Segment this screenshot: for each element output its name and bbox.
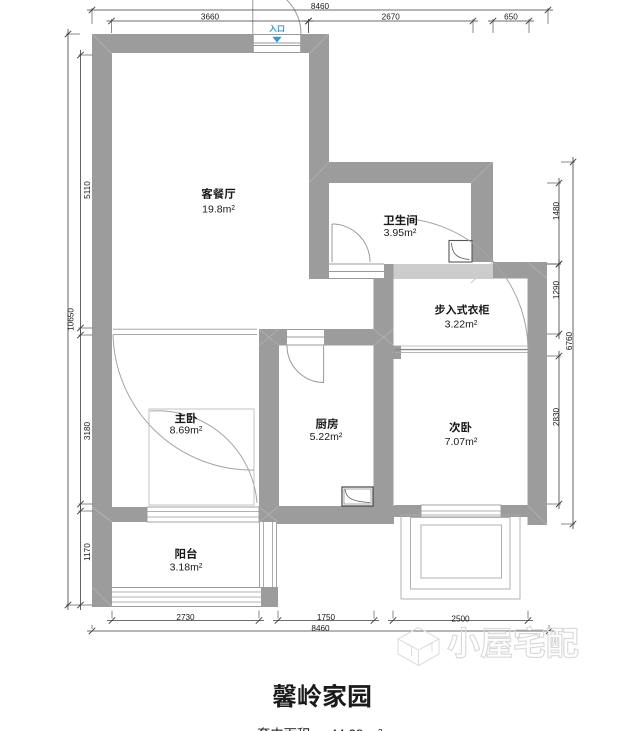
- svg-text:8460: 8460: [311, 624, 330, 633]
- svg-text:5110: 5110: [83, 181, 92, 199]
- svg-text:44.28 m²: 44.28 m²: [330, 727, 383, 731]
- svg-text:6760: 6760: [565, 331, 574, 350]
- svg-text:1170: 1170: [83, 543, 92, 561]
- svg-text:3.95m²: 3.95m²: [384, 227, 417, 239]
- svg-text:10650: 10650: [67, 308, 76, 331]
- svg-text:3.22m²: 3.22m²: [445, 319, 478, 331]
- svg-text:2730: 2730: [176, 613, 195, 622]
- svg-text:3.18m²: 3.18m²: [170, 562, 203, 574]
- svg-text:1290: 1290: [552, 280, 561, 299]
- svg-text:1480: 1480: [552, 201, 561, 220]
- svg-text:650: 650: [504, 13, 518, 22]
- svg-text:2500: 2500: [451, 615, 470, 624]
- svg-text:3660: 3660: [201, 13, 220, 22]
- svg-text:7.07m²: 7.07m²: [445, 436, 478, 448]
- svg-text::: :: [313, 727, 317, 731]
- svg-text:2670: 2670: [382, 13, 401, 22]
- svg-text:8.69m²: 8.69m²: [170, 425, 203, 437]
- svg-text:2830: 2830: [552, 407, 561, 426]
- svg-text:5.22m²: 5.22m²: [310, 431, 343, 443]
- svg-text:8460: 8460: [311, 2, 330, 11]
- svg-text:3180: 3180: [83, 421, 92, 440]
- svg-text:1750: 1750: [317, 613, 336, 622]
- svg-text:19.8m²: 19.8m²: [202, 204, 235, 216]
